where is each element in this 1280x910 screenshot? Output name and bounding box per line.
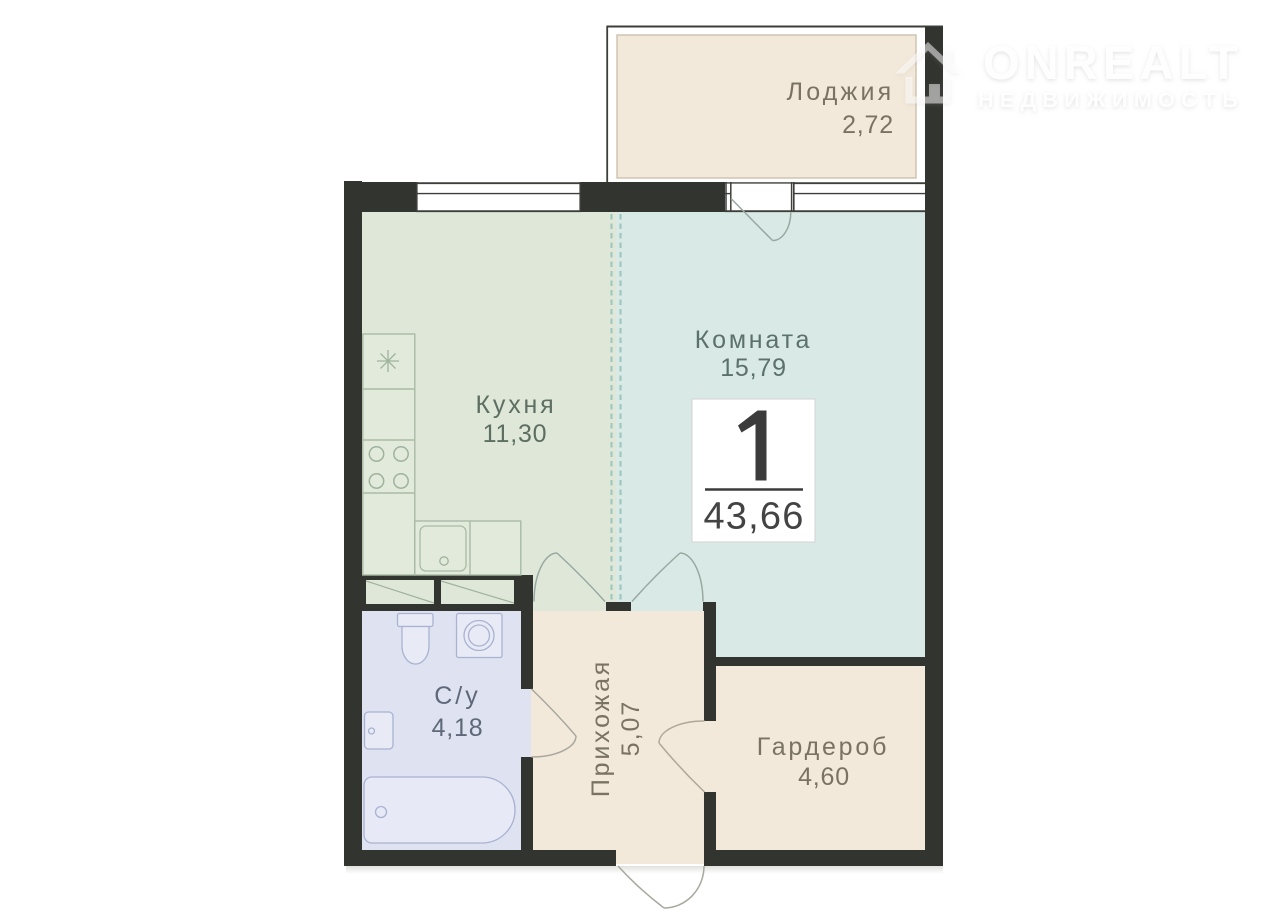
svg-text:5,07: 5,07 bbox=[617, 700, 645, 757]
svg-text:С/у: С/у bbox=[434, 682, 481, 710]
svg-text:НЕДВИЖИМОСТЬ: НЕДВИЖИМОСТЬ bbox=[978, 88, 1244, 112]
svg-text:11,30: 11,30 bbox=[483, 420, 548, 448]
svg-text:15,79: 15,79 bbox=[720, 354, 787, 382]
svg-text:4,18: 4,18 bbox=[432, 714, 484, 742]
svg-text:Гардероб: Гардероб bbox=[757, 733, 889, 761]
svg-text:2,72: 2,72 bbox=[842, 111, 894, 139]
svg-text:43,66: 43,66 bbox=[703, 496, 804, 538]
svg-text:ONREALT: ONREALT bbox=[983, 36, 1243, 89]
svg-text:Комната: Комната bbox=[695, 326, 813, 354]
svg-text:Лоджия: Лоджия bbox=[787, 78, 895, 106]
svg-text:Кухня: Кухня bbox=[476, 391, 557, 419]
svg-text:4,60: 4,60 bbox=[798, 763, 850, 791]
svg-text:Прихожая: Прихожая bbox=[587, 659, 615, 797]
